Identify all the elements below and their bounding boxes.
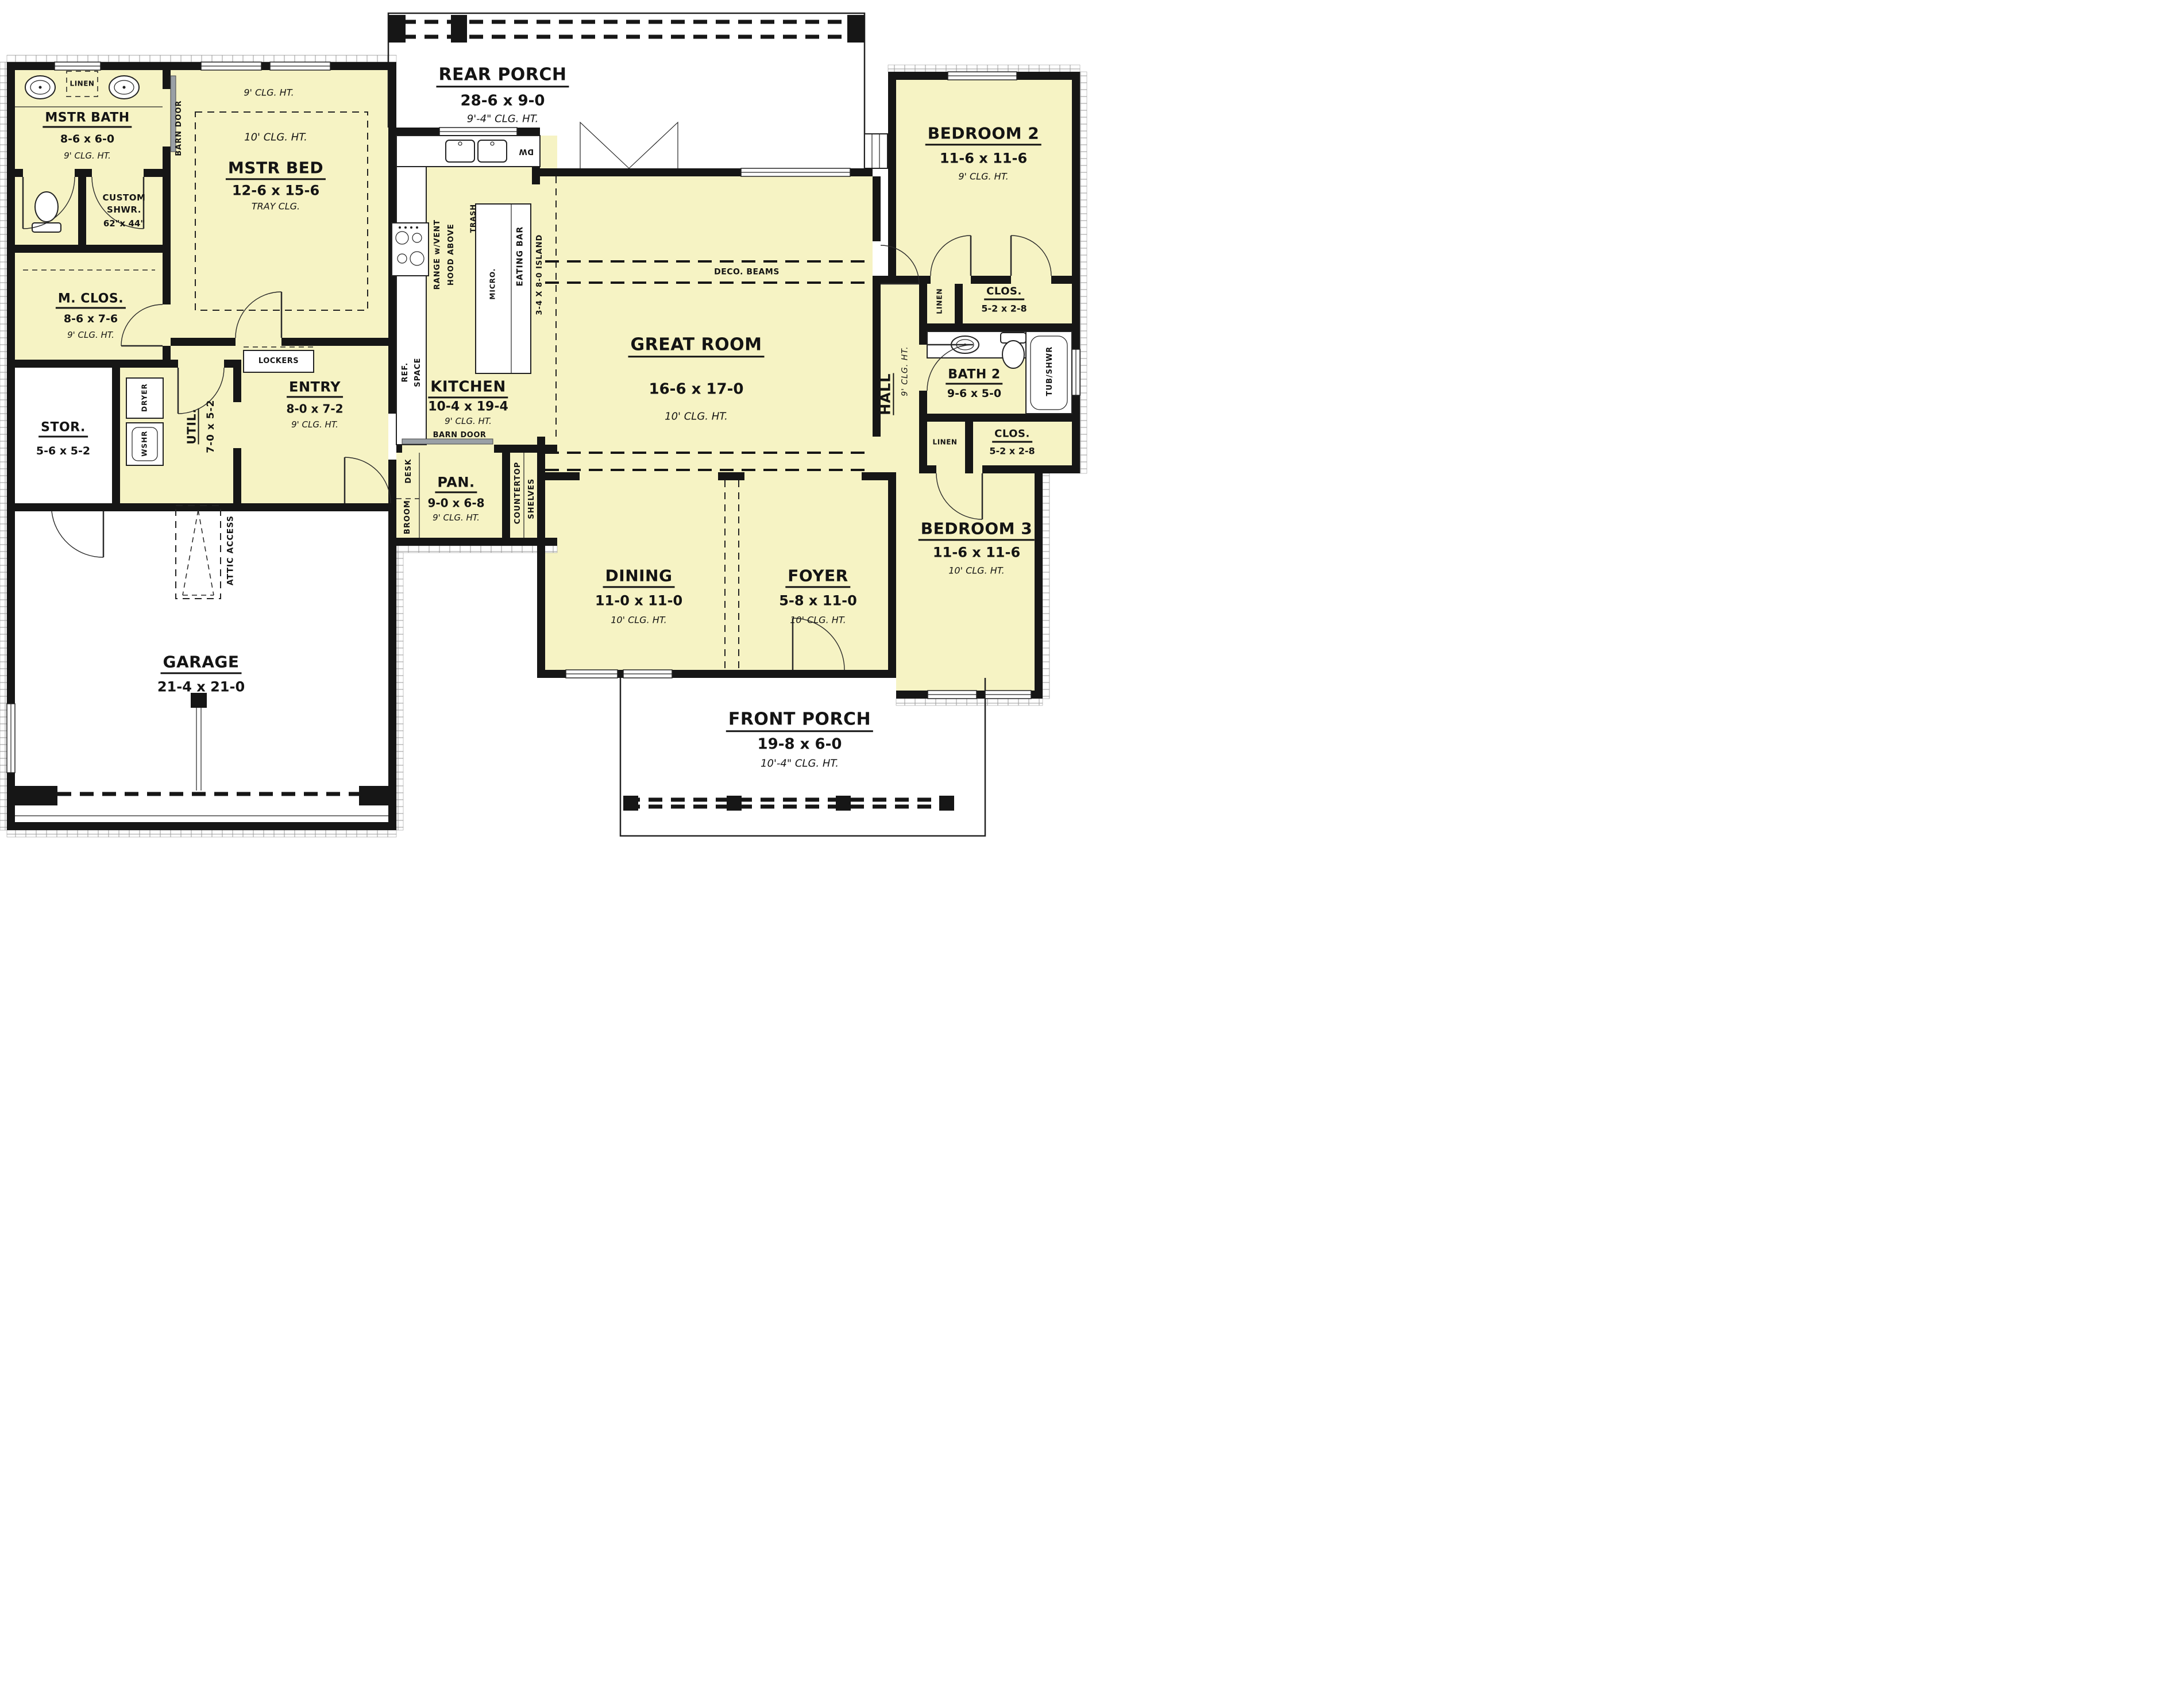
attic-access-label: ATTIC ACCESS <box>227 515 236 588</box>
ref-label-2: SPACE <box>414 358 422 390</box>
bedroom3-ceiling: 10' CLG. HT. <box>948 566 1005 576</box>
barn-door-slider <box>402 439 493 444</box>
countertop-label: COUNTERTOP <box>514 462 522 526</box>
range-label-1: RANGE w/VENT <box>434 219 442 292</box>
barn-door-label-mstr: BARN DOOR <box>175 100 183 158</box>
micro-label: MICRO. <box>489 268 497 302</box>
porch-post <box>388 15 406 43</box>
porch-post <box>451 15 467 43</box>
trash-label: TRASH <box>470 204 477 235</box>
porch-post <box>623 796 638 811</box>
pan-dims: 9-0 x 6-8 <box>427 498 484 510</box>
hall-title: HALL <box>878 373 893 417</box>
clos-top-dims: 5-2 x 2-8 <box>981 304 1027 314</box>
toilet-icon <box>1002 341 1024 368</box>
great-room-title: GREAT ROOM <box>628 336 765 354</box>
sink-basin <box>446 140 474 162</box>
foyer-title: FOYER <box>785 567 850 584</box>
mstr-bed-dims: 12-6 x 15-6 <box>232 183 319 198</box>
lockers-label: LOCKERS <box>258 357 299 365</box>
attic-ladder <box>183 510 214 595</box>
bedroom3-title: BEDROOM 3 <box>919 520 1035 537</box>
garage-dims: 21-4 x 21-0 <box>157 680 245 694</box>
shelves-label: SHELVES <box>528 479 536 522</box>
great-room-dims: 16-6 x 17-0 <box>649 381 743 397</box>
mstr-bath-ceiling: 9' CLG. HT. <box>64 152 111 161</box>
linen-hall-top-label: LINEN <box>936 288 944 316</box>
pan-ceiling: 9' CLG. HT. <box>433 514 480 523</box>
porch-post <box>836 796 851 811</box>
front-porch-title: FRONT PORCH <box>726 710 873 728</box>
clos-top-title: CLOS. <box>984 287 1024 298</box>
deco-beams-label: DECO. BEAMS <box>711 268 783 277</box>
dryer-label: DRYER <box>141 383 149 414</box>
linen-hall-bottom-label: LINEN <box>933 439 958 446</box>
dining-title: DINING <box>603 567 675 584</box>
entry-dims: 8-0 x 7-2 <box>286 403 343 415</box>
range-label-2: HOOD ABOVE <box>447 223 456 288</box>
linen-label: LINEN <box>70 80 95 88</box>
island-dims-label: 3-4 X 8-0 ISLAND <box>536 234 544 318</box>
porch-steps <box>865 134 888 168</box>
foyer-dims: 5-8 x 11-0 <box>779 593 857 608</box>
bedroom2-ceiling: 9' CLG. HT. <box>958 172 1008 182</box>
french-doors <box>580 122 678 168</box>
custom-shwr-dims: 62"x 44" <box>103 219 145 229</box>
clos-bottom-dims: 5-2 x 2-8 <box>989 447 1035 457</box>
porch-post <box>847 15 865 43</box>
floor-plan: REAR PORCH 28-6 x 9-0 9'-4" CLG. HT. MST… <box>0 0 1092 842</box>
desk-label: DESK <box>405 459 413 486</box>
attic-access-outline <box>176 506 221 599</box>
dw-label: DW <box>519 147 534 155</box>
entry-ceiling: 9' CLG. HT. <box>291 421 338 430</box>
foyer-ceiling: 10' CLG. HT. <box>790 616 846 626</box>
toilet-icon <box>35 192 58 222</box>
front-porch-ceiling: 10'-4" CLG. HT. <box>761 759 839 770</box>
stor-title: STOR. <box>38 421 88 434</box>
front-porch-dims: 19-8 x 6-0 <box>758 737 842 752</box>
pan-title: PAN. <box>435 475 477 489</box>
barn-door-label-kitchen: BARN DOOR <box>433 431 487 439</box>
m-clos-ceiling: 9' CLG. HT. <box>67 331 114 340</box>
m-clos-dims: 8-6 x 7-6 <box>64 314 118 325</box>
garage-title: GARAGE <box>161 653 242 670</box>
mstr-bed-tray: TRAY CLG. <box>252 202 300 212</box>
rear-porch-title: REAR PORCH <box>436 65 569 84</box>
bath2-dims: 9-6 x 5-0 <box>947 388 1001 400</box>
stor-dims: 5-6 x 5-2 <box>36 446 90 457</box>
eating-bar-label: EATING BAR <box>516 226 525 288</box>
ref-label-1: REF. <box>402 363 410 385</box>
kitchen-ceiling: 9' CLG. HT. <box>445 417 492 426</box>
m-clos-title: M. CLOS. <box>56 292 126 305</box>
mstr-bed-outer-clg: 9' CLG. HT. <box>244 88 294 98</box>
bath2-title: BATH 2 <box>946 368 1002 381</box>
great-room-ceiling: 10' CLG. HT. <box>665 412 728 423</box>
hall-ceiling: 9' CLG. HT. <box>901 346 910 398</box>
garage-center-post <box>191 693 207 708</box>
custom-shwr-line2: SHWR. <box>107 206 141 215</box>
mstr-bath-title: MSTR BATH <box>43 111 132 124</box>
bedroom3-dims: 11-6 x 11-6 <box>933 545 1020 560</box>
clos-bottom-title: CLOS. <box>992 429 1032 440</box>
dining-ceiling: 10' CLG. HT. <box>611 616 667 626</box>
custom-shwr-line1: CUSTOM <box>103 194 146 203</box>
broom-label: BROOM <box>404 500 412 537</box>
mstr-bath-dims: 8-6 x 6-0 <box>60 134 114 145</box>
garage-door-structure <box>15 693 396 816</box>
tub-shwr-label: TUB/SHWR <box>1046 346 1054 398</box>
kitchen-title: KITCHEN <box>428 379 508 395</box>
entry-title: ENTRY <box>287 380 343 394</box>
rear-porch-dims: 28-6 x 9-0 <box>461 93 545 109</box>
rear-porch-ceiling: 9'-4" CLG. HT. <box>467 114 538 125</box>
dining-dims: 11-0 x 11-0 <box>595 593 682 608</box>
wshr-label: WSHR <box>141 431 149 459</box>
bedroom2-title: BEDROOM 2 <box>925 125 1041 141</box>
range-icon <box>392 223 429 276</box>
util-dims: 7-0 x 5-2 <box>206 399 217 455</box>
bedroom2-dims: 11-6 x 11-6 <box>940 151 1027 165</box>
kitchen-dims: 10-4 x 19-4 <box>428 400 508 413</box>
util-title: UTIL. <box>186 408 198 446</box>
porch-post <box>727 796 742 811</box>
sink-basin <box>478 140 507 162</box>
mstr-bed-title: MSTR BED <box>226 159 326 176</box>
mstr-bed-inner-clg: 10' CLG. HT. <box>244 133 307 144</box>
kitchen-counter-left <box>396 167 426 445</box>
porch-post <box>939 796 954 811</box>
